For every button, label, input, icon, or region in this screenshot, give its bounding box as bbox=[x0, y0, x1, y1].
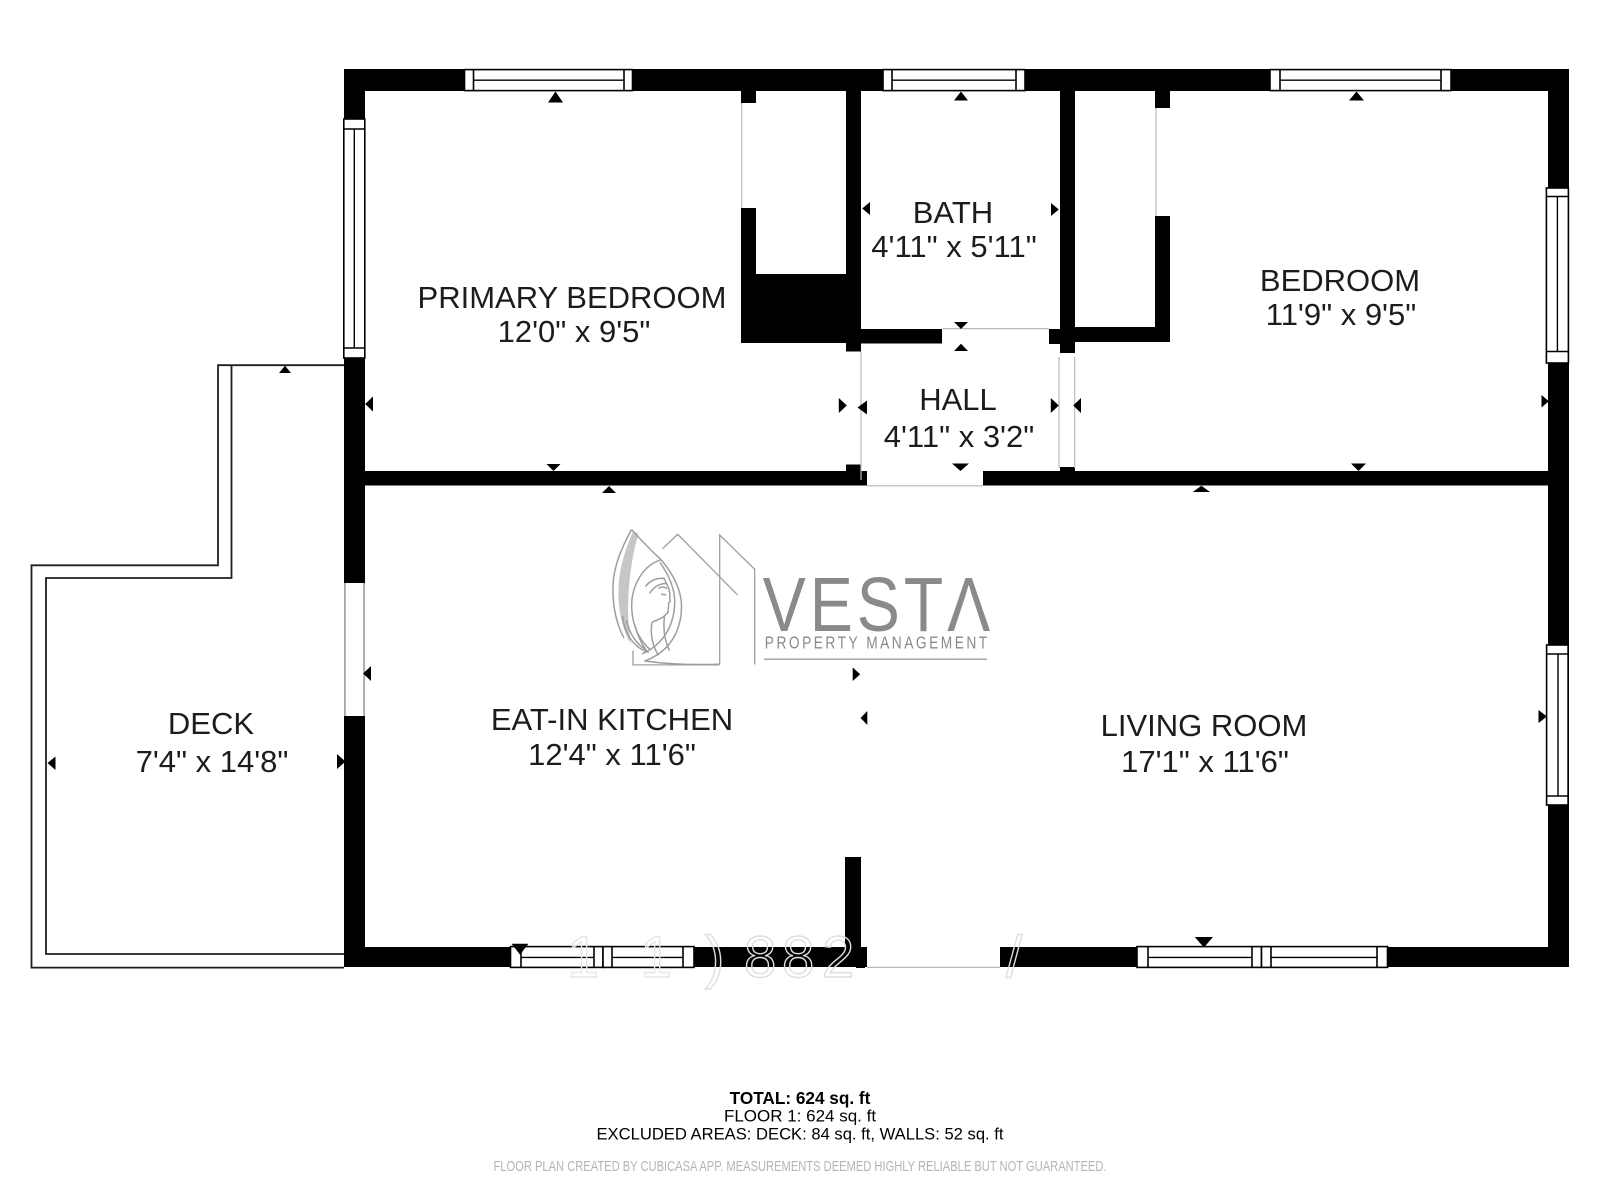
svg-text:EXCLUDED AREAS: DECK: 84 sq. f: EXCLUDED AREAS: DECK: 84 sq. ft, WALLS: … bbox=[596, 1125, 1003, 1144]
svg-text:7'4" x 14'8": 7'4" x 14'8" bbox=[136, 744, 289, 779]
svg-text:): ) bbox=[705, 925, 724, 990]
svg-text:1: 1 bbox=[567, 925, 599, 990]
svg-text:11'9" x 9'5": 11'9" x 9'5" bbox=[1266, 297, 1416, 332]
svg-text:BEDROOM: BEDROOM bbox=[1260, 263, 1420, 298]
svg-text:12'4" x 11'6": 12'4" x 11'6" bbox=[528, 737, 696, 772]
svg-text:4'11" x 5'11": 4'11" x 5'11" bbox=[871, 229, 1036, 264]
svg-text:17'1" x 11'6": 17'1" x 11'6" bbox=[1121, 744, 1289, 779]
svg-text:TOTAL: 624 sq. ft: TOTAL: 624 sq. ft bbox=[730, 1088, 871, 1108]
svg-text:EAT-IN KITCHEN: EAT-IN KITCHEN bbox=[491, 702, 733, 737]
svg-text:PROPERTY MANAGEMENT: PROPERTY MANAGEMENT bbox=[765, 634, 988, 653]
svg-text:12'0" x 9'5": 12'0" x 9'5" bbox=[498, 314, 651, 349]
svg-text:LIVING ROOM: LIVING ROOM bbox=[1101, 708, 1308, 743]
svg-text:FLOOR 1: 624 sq. ft: FLOOR 1: 624 sq. ft bbox=[724, 1107, 876, 1126]
svg-text:DECK: DECK bbox=[168, 706, 254, 741]
svg-text:2: 2 bbox=[822, 925, 854, 990]
svg-text:4'11" x 3'2": 4'11" x 3'2" bbox=[884, 419, 1034, 454]
svg-text:BATH: BATH bbox=[913, 195, 993, 230]
svg-text:/: / bbox=[1006, 925, 1023, 990]
svg-text:1: 1 bbox=[640, 925, 672, 990]
svg-text:8: 8 bbox=[782, 925, 814, 990]
svg-text:FLOOR PLAN CREATED BY CUBICASA: FLOOR PLAN CREATED BY CUBICASA APP. MEAS… bbox=[494, 1159, 1107, 1175]
svg-text:PRIMARY BEDROOM: PRIMARY BEDROOM bbox=[418, 280, 727, 315]
svg-text:HALL: HALL bbox=[919, 382, 997, 417]
svg-text:8: 8 bbox=[744, 925, 776, 990]
